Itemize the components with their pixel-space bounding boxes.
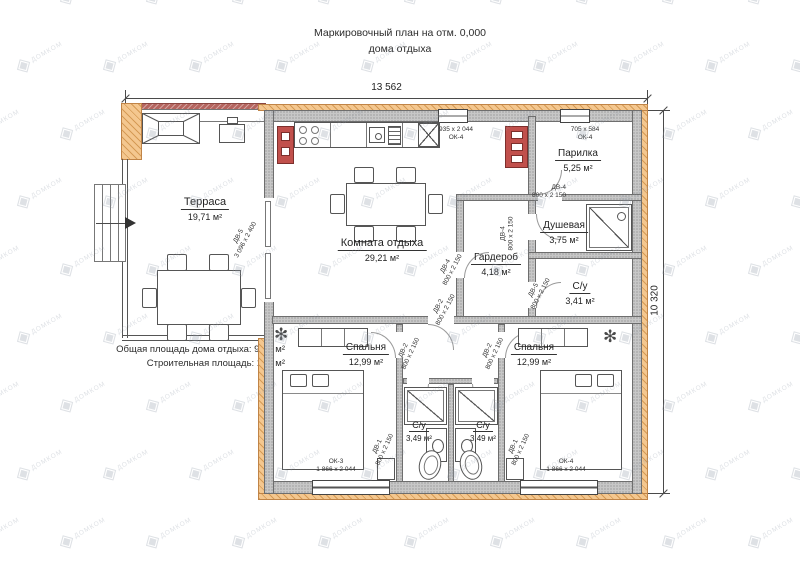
cladding-right (641, 110, 648, 494)
terrace-side-table (219, 124, 245, 143)
domkom-watermark: ◈ДОМКОМ (141, 0, 196, 10)
area-summary: Общая площадь дома отдыха: 98,5 м² Строи… (60, 343, 285, 371)
watermark-brand-text: ДОМКОМ (718, 312, 752, 336)
watermark-brand-text: ДОМКОМ (30, 448, 64, 472)
domkom-watermark: ◈ДОМКОМ (571, 510, 626, 554)
watermark-glyph-icon: ◈ (313, 0, 336, 10)
watermark-brand-text: ДОМКОМ (761, 380, 795, 404)
domkom-watermark: ◈ДОМКОМ (0, 0, 24, 10)
window-label-sauna: 705 x 584 ОК-4 (554, 126, 616, 143)
watermark-glyph-icon: ◈ (485, 0, 508, 10)
watermark-brand-text: ДОМКОМ (288, 176, 322, 200)
plant-icon: ✻ (274, 326, 288, 343)
brick-chimney (277, 126, 294, 164)
watermark-glyph-icon: ◈ (743, 393, 766, 418)
room-label-bedroom-right: Спальня 12,99 м² (511, 342, 557, 367)
sink-drain (375, 133, 382, 140)
watermark-glyph-icon: ◈ (700, 189, 723, 214)
terrace-chair (167, 324, 187, 341)
window-label-bedroom-left: ОК-3 1 866 x 2 044 (305, 458, 367, 475)
domkom-watermark: ◈ДОМКОМ (227, 510, 282, 554)
room-area: 3,75 м² (549, 235, 578, 245)
pillow (290, 374, 307, 387)
watermark-glyph-icon: ◈ (571, 257, 594, 282)
room-label-terrace: Терраса 19,71 м² (181, 196, 229, 222)
drawing-title-line2: дома отдыха (240, 41, 560, 57)
watermark-glyph-icon: ◈ (786, 325, 800, 350)
watermark-brand-text: ДОМКОМ (202, 448, 236, 472)
terrace-corner-post (121, 103, 142, 160)
watermark-brand-text: ДОМКОМ (73, 108, 107, 132)
dimension-line-top (125, 98, 648, 99)
domkom-watermark: ◈ДОМКОМ (700, 34, 755, 78)
shower-door-opening (528, 214, 536, 240)
watermark-brand-text: ДОМКОМ (503, 516, 537, 540)
room-area: 3,49 м² (406, 434, 432, 443)
watermark-brand-text: ДОМКОМ (675, 516, 709, 540)
domkom-watermark: ◈ДОМКОМ (657, 0, 712, 10)
domkom-watermark: ◈ДОМКОМ (399, 510, 454, 554)
lounge-chair (428, 194, 443, 214)
domkom-watermark: ◈ДОМКОМ (786, 34, 800, 78)
window-bedroom-left (312, 480, 390, 495)
dimension-top-value: 13 562 (125, 82, 648, 93)
room-name: С/у (569, 281, 590, 294)
domkom-watermark: ◈ДОМКОМ (313, 0, 368, 10)
lounge-dining-table (346, 183, 426, 226)
door-size: 800 x 2 150 (498, 192, 566, 200)
domkom-watermark: ◈ДОМКОМ (657, 238, 712, 282)
room-name: С/у (473, 420, 493, 432)
watermark-brand-text: ДОМКОМ (30, 40, 64, 64)
stove-flue (511, 155, 523, 163)
bed-left (282, 370, 364, 470)
lounge-chair (330, 194, 345, 214)
watermark-brand-text: ДОМКОМ (245, 516, 279, 540)
watermark-glyph-icon: ◈ (657, 121, 680, 146)
domkom-watermark: ◈ДОМКОМ (657, 374, 712, 418)
tray-inner (407, 390, 444, 422)
domkom-watermark: ◈ДОМКОМ (141, 374, 196, 418)
watermark-glyph-icon: ◈ (743, 0, 766, 10)
total-area-text: Общая площадь дома отдыха: 98,5 м² (60, 343, 285, 357)
room-name: Спальня (511, 342, 557, 355)
door-mark: ДВ-4 (498, 184, 566, 192)
door-mark: ДВ-4 (500, 203, 508, 263)
watermark-glyph-icon: ◈ (313, 529, 336, 554)
domkom-watermark: ◈ДОМКОМ (184, 442, 239, 486)
watermark-brand-text: ДОМКОМ (675, 108, 709, 132)
room-area: 5,25 м² (563, 163, 592, 173)
domkom-watermark: ◈ДОМКОМ (0, 510, 24, 554)
watermark-brand-text: ДОМКОМ (503, 380, 537, 404)
terrace-chair (209, 324, 229, 341)
terrace-chair (241, 288, 256, 308)
watermark-glyph-icon: ◈ (55, 121, 78, 146)
room-area: 3,49 м² (470, 434, 496, 443)
pillow (597, 374, 614, 387)
stove-burner (299, 126, 307, 134)
domkom-watermark: ◈ДОМКОМ (743, 510, 798, 554)
domkom-watermark: ◈ДОМКОМ (55, 510, 110, 554)
watermark-glyph-icon: ◈ (786, 189, 800, 214)
watermark-glyph-icon: ◈ (141, 0, 164, 10)
dimension-ext-right-top (648, 110, 670, 111)
watermark-glyph-icon: ◈ (614, 53, 637, 78)
room-name: Комната отдыха (338, 237, 427, 251)
window-mark: ОК-4 (535, 458, 597, 466)
domkom-watermark: ◈ДОМКОМ (12, 442, 67, 486)
window-bedroom-right (520, 480, 598, 495)
watermark-brand-text: ДОМКОМ (718, 176, 752, 200)
domkom-watermark: ◈ДОМКОМ (700, 442, 755, 486)
dimension-right-value: 10 320 (650, 271, 661, 331)
terrace-edge-bottom (122, 335, 266, 341)
room-label-bath-right: С/у 3,49 м² (470, 420, 496, 443)
window-size: 1 866 x 2 044 (535, 466, 597, 474)
toilet-bowl (463, 453, 481, 476)
domkom-watermark: ◈ДОМКОМ (313, 510, 368, 554)
room-name: Терраса (181, 196, 229, 210)
domkom-watermark: ◈ДОМКОМ (184, 34, 239, 78)
build-area-text: Строительная площадь: 127 м² (60, 357, 285, 371)
watermark-glyph-icon: ◈ (227, 529, 250, 554)
watermark-brand-text: ДОМКОМ (718, 448, 752, 472)
room-name: С/у (409, 420, 429, 432)
domkom-watermark: ◈ДОМКОМ (700, 306, 755, 350)
watermark-glyph-icon: ◈ (141, 393, 164, 418)
entrance-arrow-icon (125, 217, 136, 229)
terrace-chair (167, 254, 187, 271)
brick-flue (281, 132, 290, 141)
terrace-door-panel (265, 201, 271, 247)
watermark-glyph-icon: ◈ (184, 53, 207, 78)
dimension-line-right (663, 110, 664, 494)
watermark-brand-text: ДОМКОМ (761, 516, 795, 540)
terrace-side-table-item (227, 117, 238, 124)
lounge-chair (396, 167, 416, 183)
wall-baths-divider (448, 384, 454, 482)
watermark-glyph-icon: ◈ (700, 53, 723, 78)
tray-inner (458, 390, 495, 422)
door-label-shower: ДВ-4 800 x 2 150 (500, 203, 517, 263)
room-label-shower: Душевая 3,75 м² (540, 220, 588, 245)
toilet-bowl (422, 454, 440, 477)
domkom-watermark: ◈ДОМКОМ (270, 170, 325, 214)
domkom-watermark: ◈ДОМКОМ (743, 102, 798, 146)
lounge-chair (354, 167, 374, 183)
room-area: 29,21 м² (365, 253, 399, 263)
watermark-glyph-icon: ◈ (485, 529, 508, 554)
window-sauna (560, 109, 590, 123)
watermark-glyph-icon: ◈ (786, 461, 800, 486)
watermark-brand-text: ДОМКОМ (0, 516, 21, 540)
watermark-glyph-icon: ◈ (786, 53, 800, 78)
domkom-watermark: ◈ДОМКОМ (485, 0, 540, 10)
watermark-brand-text: ДОМКОМ (30, 176, 64, 200)
dimension-ext-right-bottom (648, 493, 670, 494)
watermark-glyph-icon: ◈ (657, 0, 680, 10)
terrace-chair (142, 288, 157, 308)
domkom-watermark: ◈ДОМКОМ (657, 510, 712, 554)
door-size: 800 x 2 150 (508, 203, 516, 263)
room-area: 19,71 м² (188, 212, 222, 222)
domkom-watermark: ◈ДОМКОМ (571, 0, 626, 10)
watermark-glyph-icon: ◈ (743, 257, 766, 282)
watermark-brand-text: ДОМКОМ (761, 244, 795, 268)
room-area: 3,41 м² (565, 296, 594, 306)
watermark-brand-text: ДОМКОМ (675, 380, 709, 404)
watermark-brand-text: ДОМКОМ (0, 244, 21, 268)
watermark-glyph-icon: ◈ (98, 461, 121, 486)
window-size: 935 x 2 044 (425, 126, 487, 134)
watermark-glyph-icon: ◈ (55, 257, 78, 282)
domkom-watermark: ◈ДОМКОМ (55, 374, 110, 418)
door-label-sauna: ДВ-4 800 x 2 150 (498, 184, 566, 201)
watermark-glyph-icon: ◈ (141, 529, 164, 554)
domkom-watermark: ◈ДОМКОМ (55, 0, 110, 10)
domkom-watermark: ◈ДОМКОМ (98, 442, 153, 486)
watermark-glyph-icon: ◈ (657, 529, 680, 554)
domkom-watermark: ◈ДОМКОМ (12, 170, 67, 214)
watermark-brand-text: ДОМКОМ (73, 380, 107, 404)
watermark-glyph-icon: ◈ (743, 529, 766, 554)
wall-shower-wc (528, 252, 642, 259)
wall-exterior-left (264, 110, 274, 494)
window-mark: ОК-4 (554, 134, 616, 142)
window-label-bedroom-right: ОК-4 1 866 x 2 044 (535, 458, 597, 475)
shower-tray (586, 204, 632, 251)
watermark-brand-text: ДОМКОМ (675, 244, 709, 268)
watermark-brand-text: ДОМКОМ (159, 516, 193, 540)
room-name: Спальня (343, 342, 389, 355)
watermark-brand-text: ДОМКОМ (73, 516, 107, 540)
window-mark: ОК-3 (305, 458, 367, 466)
domkom-watermark: ◈ДОМКОМ (399, 0, 454, 10)
watermark-glyph-icon: ◈ (55, 393, 78, 418)
room-label-wc-small: С/у 3,41 м² (565, 281, 594, 306)
watermark-glyph-icon: ◈ (227, 393, 250, 418)
watermark-brand-text: ДОМКОМ (761, 108, 795, 132)
watermark-glyph-icon: ◈ (313, 257, 336, 282)
watermark-glyph-icon: ◈ (657, 393, 680, 418)
drawing-title-line1: Маркировочный план на отм. 0,000 (240, 25, 560, 41)
watermark-brand-text: ДОМКОМ (30, 312, 64, 336)
domkom-watermark: ◈ДОМКОМ (786, 170, 800, 214)
watermark-brand-text: ДОМКОМ (417, 516, 451, 540)
entrance-arrow-line (96, 223, 126, 224)
sauna-stove (505, 126, 528, 168)
domkom-watermark: ◈ДОМКОМ (442, 170, 497, 214)
watermark-glyph-icon: ◈ (743, 121, 766, 146)
domkom-watermark: ◈ДОМКОМ (743, 238, 798, 282)
watermark-brand-text: ДОМКОМ (0, 380, 21, 404)
watermark-glyph-icon: ◈ (700, 325, 723, 350)
watermark-glyph-icon: ◈ (55, 529, 78, 554)
stove-flue (511, 131, 523, 139)
shower-drain (617, 212, 626, 221)
domkom-watermark: ◈ДОМКОМ (786, 306, 800, 350)
room-label-sauna: Парилка 5,25 м² (555, 148, 601, 173)
plant-icon: ✻ (603, 328, 617, 345)
domkom-watermark: ◈ДОМКОМ (141, 510, 196, 554)
watermark-glyph-icon: ◈ (12, 53, 35, 78)
brick-flue (281, 147, 290, 156)
domkom-watermark: ◈ДОМКОМ (227, 0, 282, 10)
bed-right (540, 370, 622, 470)
watermark-brand-text: ДОМКОМ (202, 40, 236, 64)
stove-burner (311, 126, 319, 134)
floor-plan-page: Маркировочный план на отм. 0,000 дома от… (0, 0, 800, 566)
watermark-brand-text: ДОМКОМ (116, 40, 150, 64)
watermark-brand-text: ДОМКОМ (0, 108, 21, 132)
room-name: Парилка (555, 148, 601, 161)
pillow (575, 374, 592, 387)
room-label-bath-left: С/у 3,49 м² (406, 420, 432, 443)
window-label-kitchen: 935 x 2 044 ОК-4 (425, 126, 487, 143)
stove-burner (311, 137, 319, 145)
wall-bedrooms-top (272, 316, 642, 324)
blanket-line (541, 393, 621, 394)
watermark-brand-text: ДОМКОМ (116, 448, 150, 472)
watermark-brand-text: ДОМКОМ (159, 380, 193, 404)
watermark-glyph-icon: ◈ (98, 53, 121, 78)
watermark-glyph-icon: ◈ (12, 325, 35, 350)
window-size: 705 x 584 (554, 126, 616, 134)
domkom-watermark: ◈ДОМКОМ (485, 510, 540, 554)
watermark-glyph-icon: ◈ (700, 461, 723, 486)
watermark-glyph-icon: ◈ (571, 529, 594, 554)
drawing-title: Маркировочный план на отм. 0,000 дома от… (240, 25, 560, 58)
room-area: 4,18 м² (481, 267, 510, 277)
watermark-brand-text: ДОМКОМ (116, 312, 150, 336)
room-name: Душевая (540, 220, 588, 233)
domkom-watermark: ◈ДОМКОМ (743, 0, 798, 10)
room-area: 12,99 м² (349, 357, 383, 367)
watermark-glyph-icon: ◈ (12, 461, 35, 486)
stove-flue (511, 143, 523, 151)
sink-drainer (388, 126, 401, 145)
watermark-glyph-icon: ◈ (55, 0, 78, 10)
watermark-glyph-icon: ◈ (571, 0, 594, 10)
watermark-brand-text: ДОМКОМ (589, 516, 623, 540)
room-label-bedroom-left: Спальня 12,99 м² (343, 342, 389, 367)
domkom-watermark: ◈ДОМКОМ (12, 34, 67, 78)
domkom-watermark: ◈ДОМКОМ (55, 102, 110, 146)
domkom-watermark: ◈ДОМКОМ (0, 238, 24, 282)
domkom-watermark: ◈ДОМКОМ (786, 442, 800, 486)
watermark-glyph-icon: ◈ (12, 189, 35, 214)
domkom-watermark: ◈ДОМКОМ (614, 34, 669, 78)
watermark-glyph-icon: ◈ (227, 0, 250, 10)
watermark-glyph-icon: ◈ (399, 529, 422, 554)
stove-burner (299, 137, 307, 145)
room-label-lounge: Комната отдыха 29,21 м² (338, 237, 427, 263)
grill-table (142, 113, 200, 144)
blanket-line (283, 393, 363, 394)
watermark-glyph-icon: ◈ (184, 461, 207, 486)
watermark-brand-text: ДОМКОМ (718, 40, 752, 64)
domkom-watermark: ◈ДОМКОМ (98, 34, 153, 78)
window-mark: ОК-4 (425, 134, 487, 142)
terrace-door-panel (265, 253, 271, 299)
kitchen-sink (369, 127, 385, 143)
window-kitchen (438, 109, 468, 123)
domkom-watermark: ◈ДОМКОМ (0, 374, 24, 418)
domkom-watermark: ◈ДОМКОМ (743, 374, 798, 418)
room-area: 12,99 м² (517, 357, 551, 367)
domkom-watermark: ◈ДОМКОМ (700, 170, 755, 214)
watermark-brand-text: ДОМКОМ (632, 40, 666, 64)
domkom-watermark: ◈ДОМКОМ (0, 102, 24, 146)
terrace-dining-table (157, 270, 241, 325)
window-size: 1 866 x 2 044 (305, 466, 367, 474)
watermark-glyph-icon: ◈ (399, 0, 422, 10)
domkom-watermark: ◈ДОМКОМ (12, 306, 67, 350)
pillow (312, 374, 329, 387)
watermark-brand-text: ДОМКОМ (331, 516, 365, 540)
wall-exterior-right (632, 110, 642, 494)
